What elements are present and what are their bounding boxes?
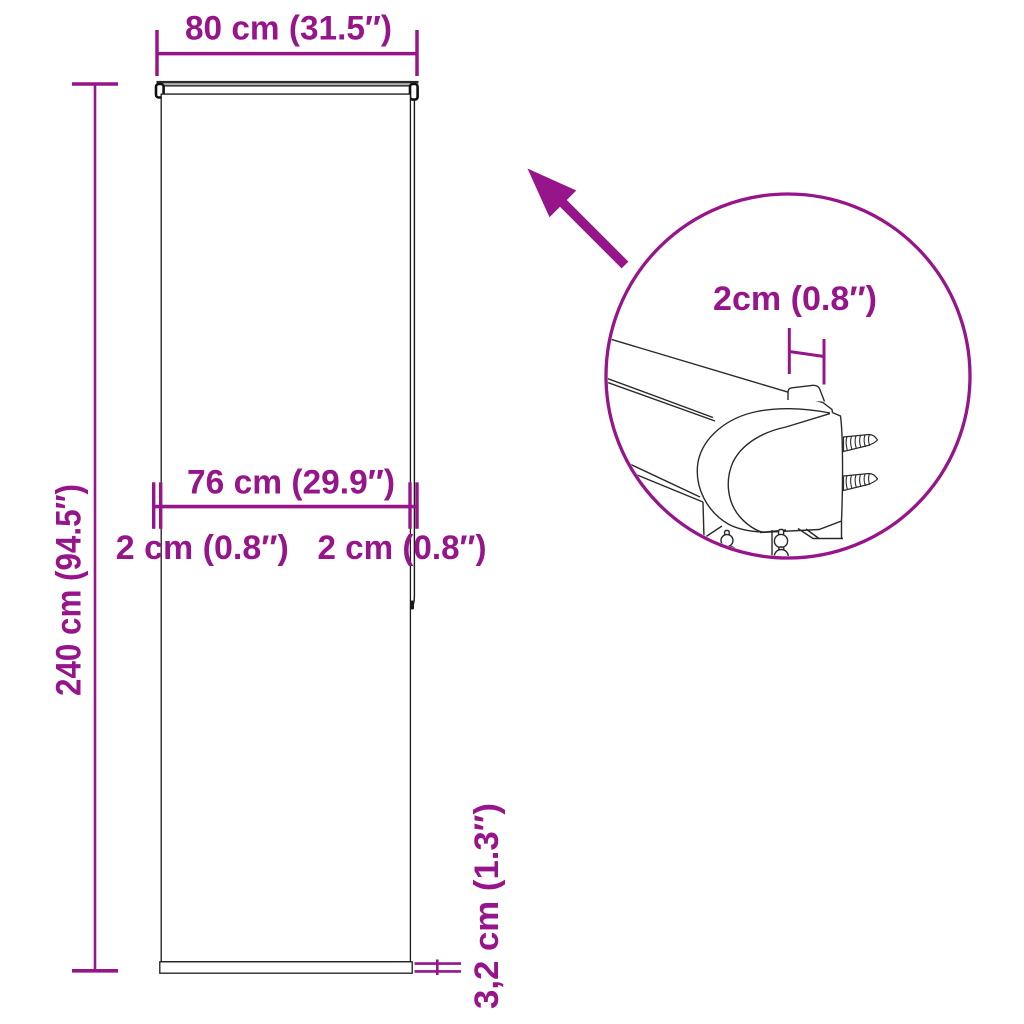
svg-text:76 cm (29.9″): 76 cm (29.9″) <box>187 464 395 502</box>
svg-text:80 cm (31.5″): 80 cm (31.5″) <box>185 10 392 48</box>
svg-text:240 cm (94.5″): 240 cm (94.5″) <box>50 484 89 696</box>
svg-text:2 cm (0.8″): 2 cm (0.8″) <box>318 529 487 567</box>
svg-text:3,2 cm (1.3″): 3,2 cm (1.3″) <box>468 803 506 1009</box>
svg-text:2 cm (0.8″): 2 cm (0.8″) <box>116 529 289 567</box>
svg-text:2cm (0.8″): 2cm (0.8″) <box>713 280 877 318</box>
